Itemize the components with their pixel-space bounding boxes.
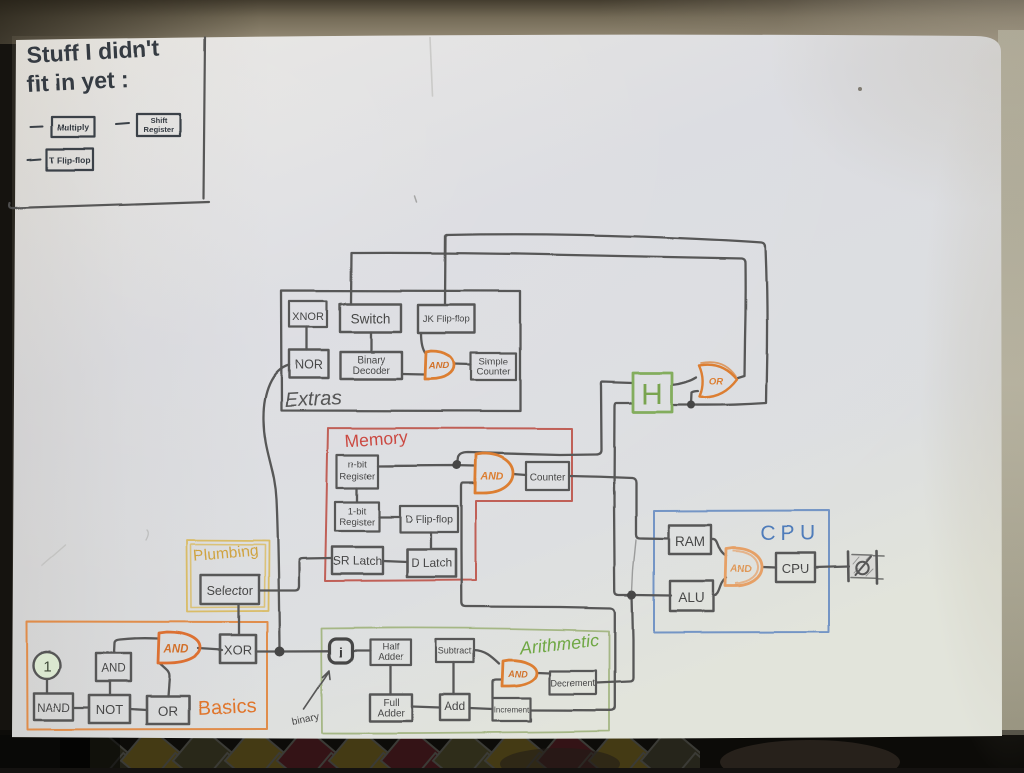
svg-text:CPU: CPU (782, 561, 809, 576)
svg-text:OR: OR (709, 377, 723, 388)
svg-text:AND: AND (163, 644, 189, 656)
svg-text:AND: AND (507, 669, 528, 679)
svg-text:Register: Register (339, 517, 374, 528)
svg-text:Basics: Basics (197, 695, 257, 720)
svg-text:Counter: Counter (477, 367, 511, 378)
svg-text:Register: Register (143, 125, 173, 134)
svg-text:D Flip-flop: D Flip-flop (405, 514, 453, 526)
svg-text:Switch: Switch (351, 311, 391, 326)
svg-text:AND: AND (729, 564, 752, 575)
svg-text:Extras: Extras (284, 387, 342, 412)
svg-text:T Flip-flop: T Flip-flop (49, 155, 90, 165)
svg-text:1: 1 (43, 658, 51, 675)
svg-text:RAM: RAM (675, 534, 705, 549)
svg-text:Counter: Counter (530, 473, 566, 484)
svg-text:Shift: Shift (150, 116, 167, 125)
svg-text:Decoder: Decoder (352, 366, 390, 377)
svg-text:NOR: NOR (295, 358, 323, 372)
svg-text:XOR: XOR (224, 643, 252, 658)
svg-text:Binary: Binary (357, 355, 385, 366)
svg-text:XNOR: XNOR (292, 311, 324, 323)
svg-text:Add: Add (444, 699, 465, 713)
svg-text:1-bit: 1-bit (348, 506, 367, 517)
svg-text:NAND: NAND (37, 703, 70, 715)
svg-text:JK Flip-flop: JK Flip-flop (423, 314, 471, 325)
svg-text:n-bit: n-bit (348, 459, 367, 470)
svg-text:Full: Full (383, 698, 399, 709)
svg-text:Adder: Adder (378, 652, 403, 663)
svg-text:D Latch: D Latch (411, 556, 452, 570)
svg-text:fit in yet :: fit in yet : (26, 66, 129, 97)
svg-text:AND: AND (101, 663, 125, 675)
svg-text:Subtract: Subtract (438, 646, 472, 656)
svg-text:OR: OR (158, 704, 179, 719)
svg-text:i: i (339, 645, 343, 661)
svg-text:Register: Register (340, 471, 375, 482)
svg-text:Adder: Adder (378, 708, 405, 719)
svg-text:CPU: CPU (760, 522, 819, 545)
svg-text:Selector: Selector (207, 584, 253, 598)
svg-text:Decrement: Decrement (551, 678, 596, 688)
svg-text:NOT: NOT (96, 702, 124, 717)
svg-text:H: H (641, 378, 663, 411)
svg-text:AND: AND (480, 471, 504, 483)
svg-text:SR Latch: SR Latch (333, 554, 382, 568)
svg-text:Increment: Increment (494, 706, 530, 715)
svg-text:Multiply: Multiply (57, 123, 89, 133)
svg-text:ALU: ALU (678, 590, 704, 605)
svg-text:AND: AND (428, 361, 450, 372)
